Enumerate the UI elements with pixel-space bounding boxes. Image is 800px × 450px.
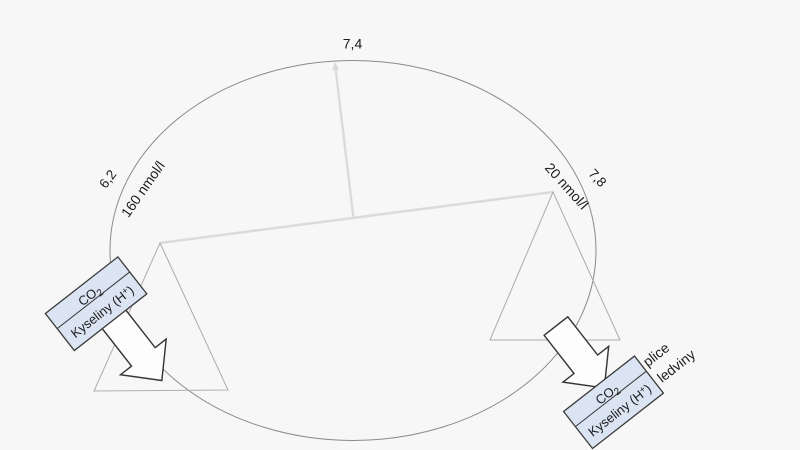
svg-text:7,4: 7,4 xyxy=(343,35,363,51)
